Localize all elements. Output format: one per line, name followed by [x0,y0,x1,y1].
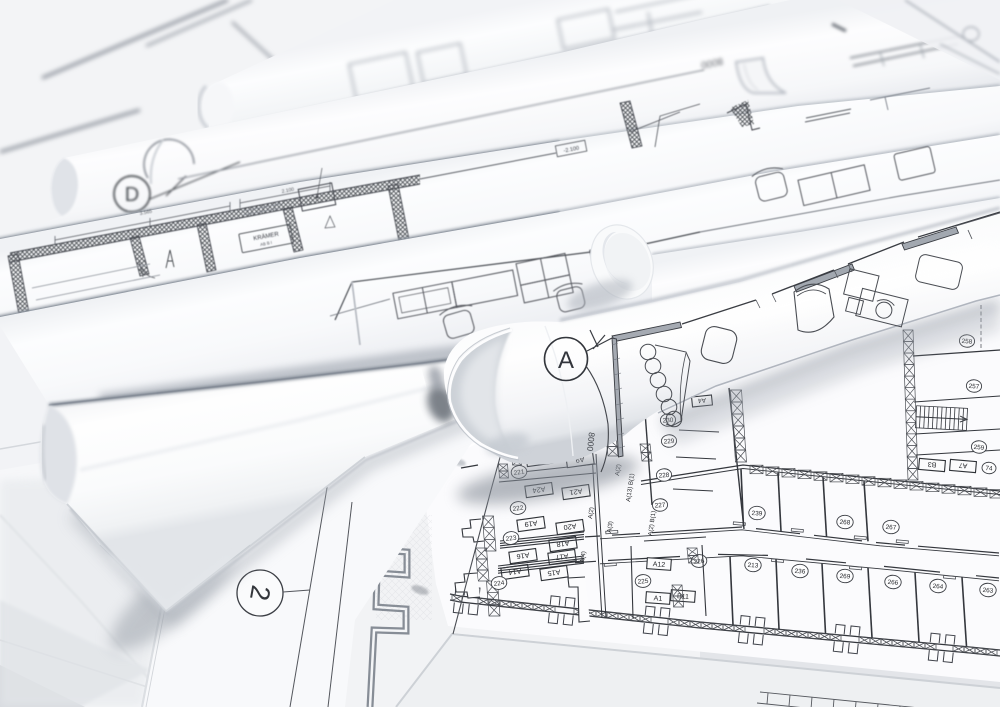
svg-text:A16: A16 [516,551,530,562]
svg-text:227: 227 [654,502,666,510]
svg-text:B3: B3 [927,460,936,468]
svg-text:A12: A12 [652,561,665,569]
svg-text:D: D [125,184,139,206]
svg-text:8000: 8000 [585,432,597,452]
svg-text:264: 264 [932,583,944,591]
svg-text:A19: A19 [524,519,538,530]
svg-text:A20: A20 [563,522,577,533]
svg-text:266: 266 [887,579,899,587]
svg-text:A: A [558,347,574,374]
svg-text:228: 228 [658,472,670,480]
svg-text:A7: A7 [958,461,967,469]
svg-text:267: 267 [885,524,897,532]
svg-text:257: 257 [968,383,980,391]
svg-text:263: 263 [982,587,994,595]
svg-text:239: 239 [751,510,762,518]
svg-text:225: 225 [637,578,649,586]
svg-text:A1: A1 [653,595,662,603]
svg-text:A18: A18 [556,539,570,550]
svg-text:268: 268 [839,519,851,527]
svg-text:74: 74 [985,465,993,473]
svg-text:259: 259 [973,444,985,452]
svg-text:213: 213 [747,562,759,570]
svg-text:236: 236 [794,568,806,576]
svg-text:A15: A15 [547,568,561,579]
svg-text:269: 269 [839,573,851,581]
